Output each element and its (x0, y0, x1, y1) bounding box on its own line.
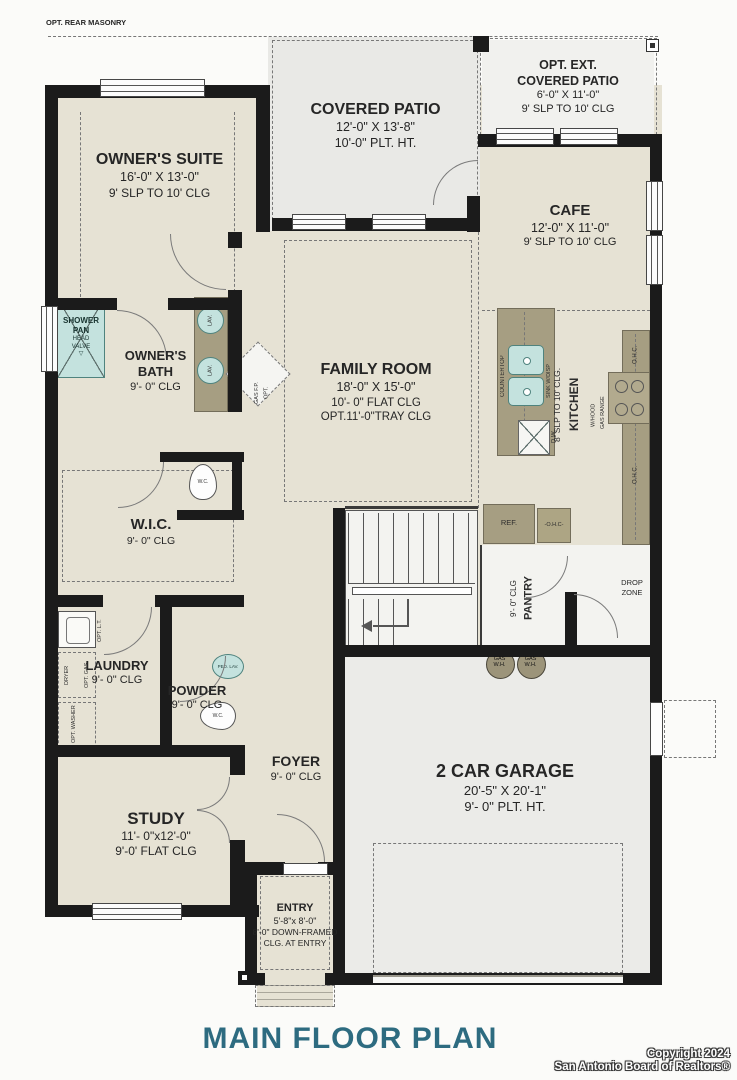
wall-segment (155, 595, 244, 607)
room-name: COVERED PATIO (288, 100, 463, 120)
burner-icon (631, 380, 644, 393)
room-dim: 6'-0" X 11'-0" (492, 89, 644, 103)
exterior-left-of-entry (40, 917, 245, 987)
wall-segment (256, 85, 270, 232)
room-clg: 9'- 0" CLG (97, 535, 205, 548)
room-label-family-room: FAMILY ROOM 18'-0" X 15'-0" 10'- 0" FLAT… (287, 360, 465, 424)
ohc-label: O.H.C. (630, 458, 642, 492)
burner-icon (615, 403, 628, 416)
gas-range (608, 372, 650, 424)
floor-plan: W.C. PED. LAV. W.C. (0, 0, 737, 1010)
room-label-foyer: FOYER 9'- 0" CLG (252, 753, 340, 784)
window (646, 235, 663, 285)
room-name: 2 CAR GARAGE (365, 760, 645, 783)
room-name: ENTRY (243, 902, 347, 916)
copyright-line: Copyright 2024 (430, 1048, 730, 1061)
room-label-kitchen: KITCHEN (566, 352, 584, 457)
room-opt-clg: OPT.11'-0"TRAY CLG (287, 410, 465, 424)
room-label-entry: ENTRY 5'-8"x 8'-0" 8'-0" DOWN-FRAMED CLG… (243, 902, 347, 948)
meter-symbol-icon (646, 39, 659, 52)
window (100, 79, 205, 97)
room-label-covered-patio: COVERED PATIO 12'-0" X 13'-8" 10'-0" PLT… (288, 100, 463, 151)
wall-segment (228, 290, 242, 412)
room-label-wic: W.I.C. 9'- 0" CLG (97, 516, 205, 548)
dishwasher-label: D.W. (550, 421, 560, 453)
gas-wh-line: W.H. (517, 662, 544, 668)
sink-drain-1 (523, 357, 531, 365)
opt-washer-label: OPT. WASHER (68, 702, 80, 746)
shower-label-line: VALVE (57, 344, 105, 352)
room-clg: 9'- 0" PLT. HT. (365, 799, 645, 815)
wall-segment (473, 36, 489, 52)
bath-toilet: W.C. (189, 464, 217, 500)
room-clg: 9' SLP TO 10' CLG (505, 236, 635, 250)
pantry-clg-label: 9'- 0" CLG (507, 556, 520, 642)
opt-gas-label: OPT. GAS (82, 654, 92, 696)
room-name: OWNER'S SUITE (62, 150, 257, 170)
stair-arrow-vline (407, 599, 409, 627)
room-label-study: STUDY 11'- 0"x12'-0" 9'-0' FLAT CLG (72, 808, 240, 859)
sink-label: SINK W/DISP (544, 348, 554, 414)
room-label-cafe: CAFE 12'-0" X 11'-0" 9' SLP TO 10' CLG (505, 202, 635, 250)
room-label-owners-suite: OWNER'S SUITE 16'-0" X 13'-0" 9' SLP TO … (62, 150, 257, 201)
shower-label-line: SHOWER (57, 316, 105, 326)
room-dim: 11'- 0"x12'-0" (72, 829, 240, 844)
floor-plan-page: { "page": { "title": "MAIN FLOOR PLAN", … (0, 0, 737, 1080)
window (41, 306, 58, 372)
gas-wh-line: W.H. (486, 662, 513, 668)
room-name: ZONE (612, 588, 652, 598)
room-name: COVERED PATIO (492, 74, 644, 90)
stair-rail (352, 587, 472, 595)
room-name: OWNER'S (108, 348, 203, 364)
opt-lt-label: OPT. L.T. (95, 611, 105, 651)
room-clg: 9' SLP TO 10' CLG (62, 186, 257, 201)
room-clg: 9'- 0" CLG (108, 381, 203, 395)
meter-symbol-dot (650, 43, 655, 48)
opt-fp-label: GAS F.P. (252, 362, 262, 424)
room-name: POWDER (152, 683, 242, 699)
copyright-notice: Copyright 2024 San Antonio Board of Real… (430, 1048, 730, 1074)
ref-label: REF. (487, 516, 531, 530)
sink-drain-2 (523, 388, 531, 396)
meter-symbol-dot (242, 975, 247, 980)
shower-label: SHOWER PAN HEAD VALVE ▽ (57, 316, 105, 359)
room-dim: 18'-0" X 15'-0" (287, 380, 465, 396)
room-label-opt-ext-patio: OPT. EXT. COVERED PATIO 6'-0" X 11'-0" 9… (492, 58, 644, 117)
room-name: CAFE (505, 202, 635, 221)
pantry-left-line (480, 545, 482, 645)
window (92, 903, 182, 920)
wall-segment (230, 745, 245, 775)
wall-segment (45, 745, 245, 757)
copyright-line: San Antonio Board of Realtors® (430, 1061, 730, 1074)
ohc-label: O.H.C. (630, 338, 642, 372)
room-clg: 10'- 0" FLAT CLG (287, 396, 465, 410)
wall-segment (45, 85, 58, 917)
dryer-label: DRYER (62, 654, 72, 696)
front-door-panel (283, 863, 328, 875)
garage-door-sill (373, 975, 623, 983)
room-dim: 12'-0" X 13'-8" (288, 120, 463, 136)
wall-segment (257, 862, 285, 875)
shower-label-line: PAN (57, 326, 105, 336)
wall-segment (228, 232, 242, 248)
window (292, 214, 346, 230)
window (646, 181, 663, 231)
stair-treads-upper (348, 513, 475, 584)
stair-treads-lower (348, 599, 406, 647)
laundry-tub-basin (66, 617, 90, 644)
window (496, 128, 554, 145)
family-kitchen-break-line (478, 232, 480, 508)
wall-segment (325, 973, 345, 985)
staircase (345, 510, 478, 650)
lav-label: LAV. (205, 359, 216, 382)
room-name: FAMILY ROOM (287, 360, 465, 380)
room-label-garage: 2 CAR GARAGE 20'-5" X 20'-1" 9'- 0" PLT.… (365, 760, 645, 815)
garage-door-area-outline (373, 843, 623, 973)
burner-icon (631, 403, 644, 416)
gas-range-hood-label: W/HOOD (589, 380, 598, 450)
shower-drain-icon: ▽ (57, 351, 105, 359)
room-label-pantry: PANTRY (521, 552, 537, 644)
room-dim: 5'-8"x 8'-0" (243, 916, 347, 927)
burner-icon (615, 380, 628, 393)
wall-segment (45, 595, 103, 607)
room-clg: 9'- 0" CLG (152, 699, 242, 713)
opt-side-door-panel (650, 702, 663, 756)
opt-rear-masonry-label: OPT. REAR MASONRY (46, 18, 126, 27)
countertop-label: COUNTERTOP (498, 328, 509, 424)
meter-symbol-icon (238, 971, 252, 985)
opt-side-door-outline (664, 700, 716, 758)
owners-suite-slope-line-1 (80, 112, 82, 297)
room-name: W.I.C. (97, 516, 205, 535)
room-name: STUDY (72, 808, 240, 829)
front-porch-outline (255, 985, 335, 1007)
room-dim: 16'-0" X 13'-0" (62, 170, 257, 186)
room-label-powder: POWDER 9'- 0" CLG (152, 683, 242, 713)
room-name: OPT. EXT. (492, 58, 644, 74)
gas-wh-label: GAS W.H. (517, 656, 544, 668)
window (560, 128, 618, 145)
room-dim: 12'-0" X 11'-0" (505, 221, 635, 237)
stair-arrow-head-icon (361, 620, 372, 632)
room-name: BATH (108, 364, 203, 380)
lav-label: LAV. (205, 309, 216, 332)
room-clg: CLG. AT ENTRY (243, 938, 347, 949)
room-clg: 9'-0' FLAT CLG (72, 844, 240, 859)
stair-top-line (345, 506, 478, 509)
room-label-owners-bath: OWNER'S BATH 9'- 0" CLG (108, 348, 203, 394)
owners-suite-slope-line-2 (234, 112, 236, 297)
gas-wh-label: GAS W.H. (486, 656, 513, 668)
laundry-tub (58, 611, 96, 648)
room-name: DROP (612, 578, 652, 588)
window (372, 214, 426, 230)
gas-range-label: GAS RANGE (598, 376, 608, 450)
dishwasher (518, 420, 550, 455)
room-clg: 9'- 0" CLG (252, 771, 340, 785)
room-label-drop-zone: DROP ZONE (612, 578, 652, 598)
stair-arrow-hline (373, 625, 409, 627)
room-clg: 10'-0" PLT. HT. (288, 136, 463, 152)
room-name: FOYER (252, 753, 340, 771)
ohc-dash-label: -O.H.C- (537, 520, 571, 530)
shower-label-line: HEAD (57, 336, 105, 344)
opt-fp-label: OPT. (262, 364, 271, 422)
room-dim: 20'-5" X 20'-1" (365, 783, 645, 799)
room-clg: 9' SLP TO 10' CLG (492, 103, 644, 117)
room-clg: 8'-0" DOWN-FRAMED (243, 927, 347, 938)
